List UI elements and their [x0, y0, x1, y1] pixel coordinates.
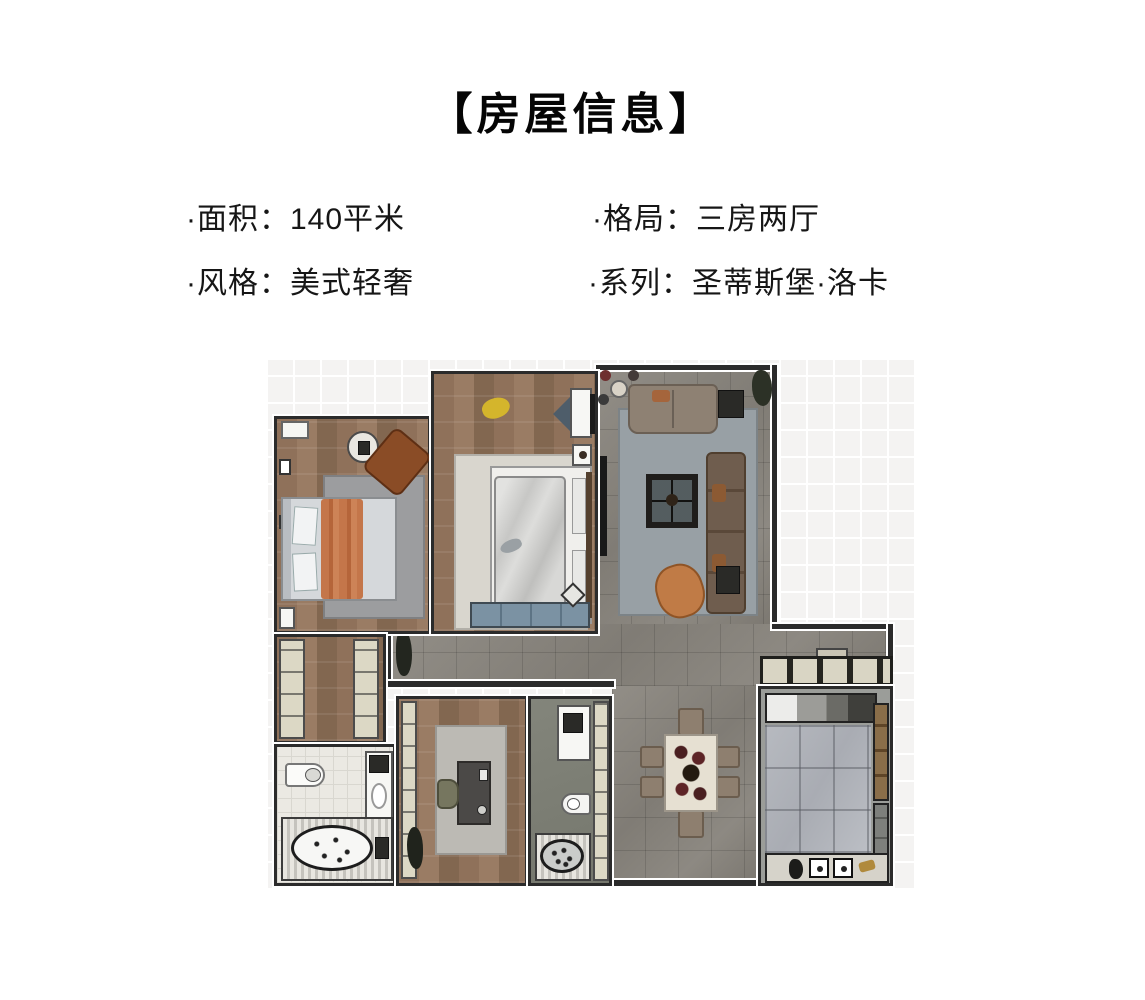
cabinet [281, 421, 309, 439]
room-study [396, 696, 528, 886]
plant [789, 859, 803, 879]
desk-item [477, 805, 487, 815]
sink-counter [765, 853, 889, 883]
decor [666, 494, 678, 506]
nightstand [572, 444, 592, 466]
plant [752, 370, 772, 406]
vanity-counter [365, 751, 393, 823]
headboard [586, 472, 592, 618]
dining-chair [716, 746, 740, 768]
room-wardrobe-hallway [274, 634, 386, 744]
loveseat-sofa [628, 384, 718, 434]
bathtub-deck [535, 833, 591, 881]
coffee-table-glass [652, 480, 692, 522]
sofa-pillow [652, 390, 670, 402]
room-bathroom-main [274, 744, 396, 886]
wall [388, 681, 614, 687]
page-title: 【房屋信息】 [0, 78, 1145, 142]
desk-chair [437, 779, 459, 809]
side-table [718, 390, 744, 418]
floor-plan [266, 360, 914, 890]
bath-faucet [375, 837, 389, 859]
pillow [292, 506, 319, 546]
room-second-bedroom [431, 371, 598, 634]
wall-art [279, 459, 291, 475]
info-area: ·面积：140平米 [186, 194, 405, 238]
oval-bathtub [291, 825, 373, 871]
headboard [283, 499, 291, 599]
tv-console [570, 388, 592, 438]
info-layout: ·格局：三房两厅 [592, 194, 820, 238]
tall-brown-cabinets [873, 703, 889, 801]
toilet-bowl [305, 768, 321, 782]
closet-column-right [353, 639, 379, 739]
toilet [285, 763, 325, 787]
decor [579, 451, 587, 459]
sofa-cushion-line [672, 390, 674, 428]
coffee-table [646, 474, 698, 528]
pillow [572, 478, 586, 534]
bathtub-deck [281, 817, 393, 881]
vanity-counter [557, 705, 591, 761]
dining-chair [678, 708, 704, 736]
dining-chair [640, 746, 664, 768]
room-bathroom-second [528, 696, 612, 886]
oval-bathtub [540, 839, 584, 873]
room-master-bedroom [274, 416, 431, 634]
decor [358, 441, 370, 455]
kitchen-floor [765, 725, 871, 853]
info-series: ·系列：圣蒂斯堡·洛卡 [588, 258, 889, 302]
dining-chair [640, 776, 664, 798]
living-room-furniture [598, 368, 775, 626]
sink-basin [809, 858, 829, 878]
entry-bistro-chair [598, 394, 609, 405]
master-bed [281, 497, 397, 601]
side-table [716, 566, 740, 594]
desk [457, 761, 491, 825]
dining-chair [678, 810, 704, 838]
toilet-bowl [567, 798, 580, 810]
entry-bistro-table [610, 380, 628, 398]
storage-column [593, 701, 609, 881]
orange-throw [321, 499, 363, 599]
wall [888, 624, 893, 658]
entry-bistro-chair [600, 370, 611, 381]
pillow [292, 552, 318, 591]
sofa-pillow [712, 484, 726, 502]
wall [772, 624, 893, 629]
counter-with-stove [765, 693, 877, 723]
closet-column-left [279, 639, 305, 739]
page: { "header": { "title": "【房屋信息】" }, "info… [0, 0, 1145, 1000]
kitchen-upper-cabinet-row [760, 656, 893, 686]
desk-item [479, 769, 488, 781]
gold-faucet [858, 859, 876, 873]
drain [841, 866, 847, 872]
sink [371, 783, 387, 809]
vanity-cabinet [563, 713, 583, 733]
drain [817, 866, 823, 872]
cabinet-gray [873, 803, 889, 859]
dining-furniture [612, 686, 758, 884]
dining-table [664, 734, 718, 812]
entry-bistro-chair [628, 370, 639, 381]
room-kitchen [758, 686, 893, 886]
plant [407, 827, 423, 869]
plant [396, 630, 412, 676]
dining-chair [716, 776, 740, 798]
toilet [561, 793, 591, 815]
tv-panel [600, 456, 607, 556]
appliance [369, 755, 389, 773]
yellow-toy [479, 394, 512, 422]
nightstand [279, 607, 295, 629]
tv-panel [590, 394, 595, 434]
info-style: ·风格：美式轻奢 [186, 258, 414, 302]
sink-basin [833, 858, 853, 878]
